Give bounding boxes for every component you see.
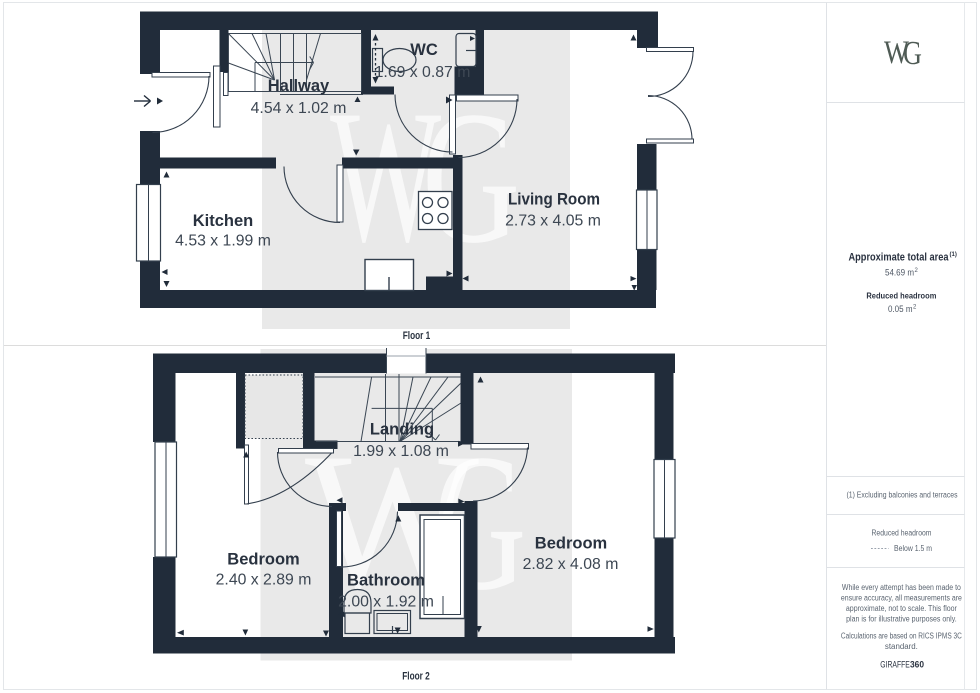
svg-text:GIRAFFE: GIRAFFE: [880, 660, 910, 671]
svg-text:2.00 x 1.92 m: 2.00 x 1.92 m: [338, 594, 434, 611]
svg-text:2.82 x 4.08 m: 2.82 x 4.08 m: [523, 556, 619, 573]
svg-text:Kitchen: Kitchen: [193, 212, 254, 230]
svg-text:WC: WC: [410, 41, 438, 59]
svg-text:360: 360: [910, 660, 924, 671]
svg-text:(1): (1): [950, 252, 957, 258]
svg-text:Bedroom: Bedroom: [227, 551, 299, 569]
svg-text:1.69 x 0.87 m: 1.69 x 0.87 m: [375, 64, 471, 81]
svg-text:1.99 x 1.08 m: 1.99 x 1.08 m: [353, 443, 449, 460]
svg-text:G: G: [422, 72, 520, 283]
svg-text:2.73 x 4.05 m: 2.73 x 4.05 m: [505, 213, 601, 230]
svg-text:Calculations are based on RICS: Calculations are based on RICS IPMS 3C: [841, 632, 962, 641]
svg-text:Bedroom: Bedroom: [535, 535, 607, 553]
svg-text:Floor 2: Floor 2: [402, 671, 430, 683]
svg-text:approximate, not to scale. Thi: approximate, not to scale. This floor: [846, 604, 957, 613]
svg-text:2.40 x 2.89 m: 2.40 x 2.89 m: [216, 572, 312, 589]
svg-text:Living Room: Living Room: [508, 191, 600, 209]
svg-text:Floor 1: Floor 1: [403, 330, 431, 342]
svg-text:4.53 x 1.99 m: 4.53 x 1.99 m: [175, 233, 271, 250]
svg-text:standard.: standard.: [885, 642, 918, 651]
svg-text:ensure accuracy, all measureme: ensure accuracy, all measurements are: [841, 594, 962, 603]
svg-text:While every attempt has been m: While every attempt has been made to: [842, 583, 962, 592]
svg-text:54.69 m: 54.69 m: [885, 268, 914, 279]
svg-text:Below 1.5 m: Below 1.5 m: [894, 544, 932, 553]
svg-text:Approximate total area: Approximate total area: [849, 252, 950, 264]
svg-text:Reduced headroom: Reduced headroom: [872, 529, 932, 538]
svg-text:G: G: [903, 34, 922, 72]
svg-text:Hallway: Hallway: [268, 77, 330, 95]
svg-text:4.54 x 1.02 m: 4.54 x 1.02 m: [251, 100, 347, 117]
svg-text:Landing: Landing: [370, 421, 434, 439]
svg-text:(1) Excluding balconies and te: (1) Excluding balconies and terraces: [847, 491, 958, 500]
svg-text:plan is for illustrative purpo: plan is for illustrative purposes only.: [846, 615, 957, 624]
svg-text:0.05 m: 0.05 m: [888, 304, 913, 315]
svg-text:Bathroom: Bathroom: [347, 572, 425, 590]
svg-text:Reduced headroom: Reduced headroom: [866, 291, 936, 301]
